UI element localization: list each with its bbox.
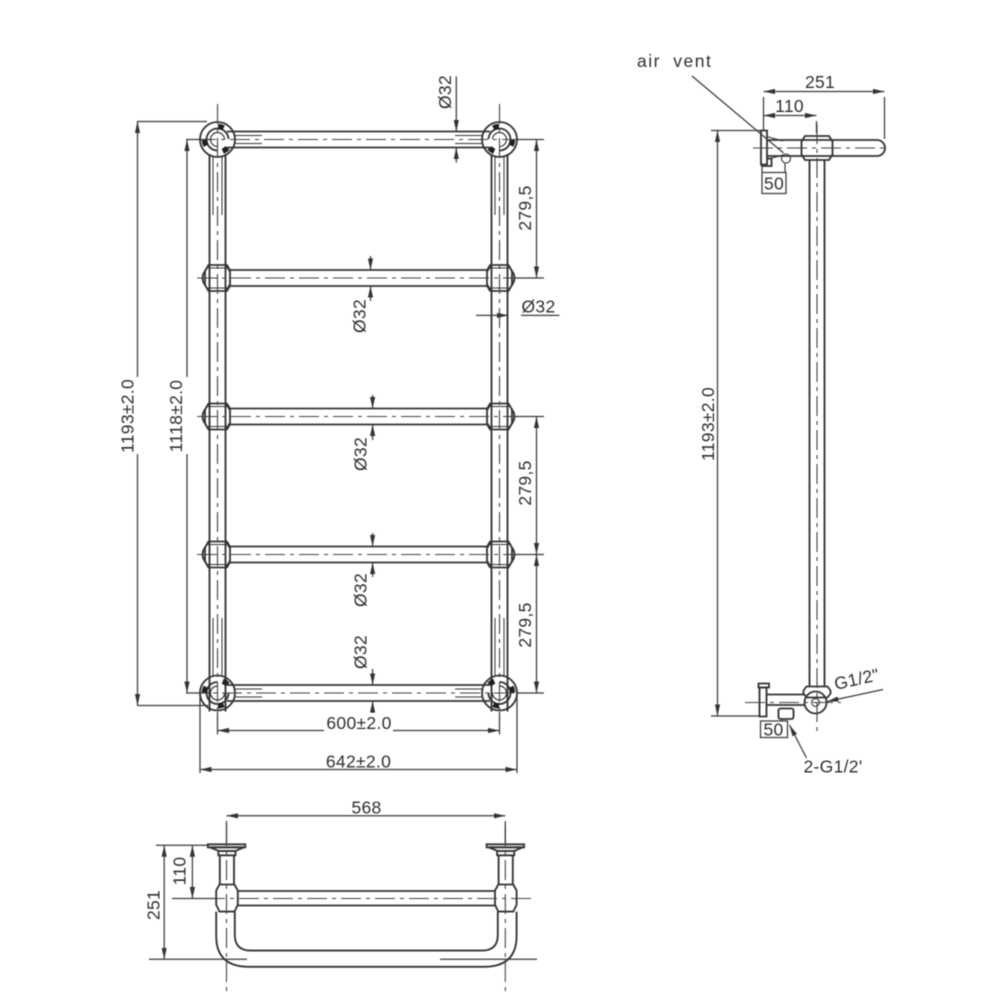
svg-text:50: 50	[764, 174, 784, 194]
svg-text:279,5: 279,5	[515, 602, 535, 647]
svg-text:Ø32: Ø32	[435, 75, 455, 109]
svg-text:2-G1/2': 2-G1/2'	[804, 757, 863, 777]
svg-text:Ø32: Ø32	[351, 573, 371, 607]
svg-text:50: 50	[763, 720, 783, 740]
svg-text:568: 568	[351, 798, 381, 818]
svg-text:110: 110	[170, 857, 190, 886]
svg-text:Ø32: Ø32	[351, 635, 371, 669]
svg-text:642±2.0: 642±2.0	[326, 752, 391, 772]
svg-text:Ø32: Ø32	[351, 437, 371, 471]
svg-text:1193±2.0: 1193±2.0	[118, 379, 138, 453]
svg-text:air vent: air vent	[637, 51, 712, 71]
svg-text:1118±2.0: 1118±2.0	[166, 380, 186, 453]
svg-text:1193±2.0: 1193±2.0	[698, 387, 718, 461]
svg-text:Ø32: Ø32	[522, 297, 556, 317]
svg-text:110: 110	[775, 96, 804, 116]
svg-text:Ø32: Ø32	[350, 299, 370, 333]
svg-text:251: 251	[143, 890, 163, 920]
svg-text:279,5: 279,5	[515, 460, 535, 505]
svg-text:251: 251	[805, 72, 835, 92]
svg-text:279,5: 279,5	[515, 185, 535, 230]
svg-text:600±2.0: 600±2.0	[326, 713, 391, 733]
svg-text:G1/2": G1/2"	[832, 664, 881, 693]
